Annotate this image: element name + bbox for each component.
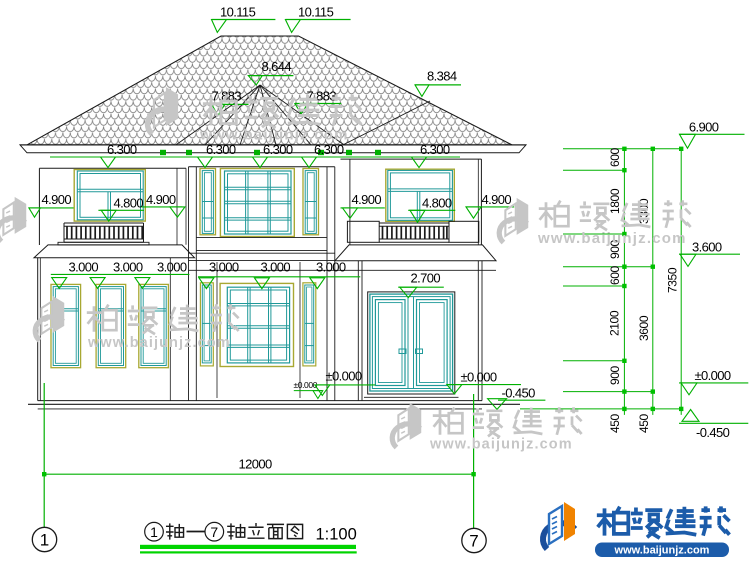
svg-text:6.300: 6.300 xyxy=(206,142,236,157)
svg-text:450: 450 xyxy=(637,413,651,433)
svg-text:±0.000: ±0.000 xyxy=(294,380,318,390)
svg-text:4.900: 4.900 xyxy=(146,192,176,207)
svg-text:3.000: 3.000 xyxy=(261,260,291,275)
svg-text:1800: 1800 xyxy=(608,188,622,214)
svg-text:www.baijunjz.com: www.baijunjz.com xyxy=(537,230,687,247)
svg-text:www.baijunjz.com: www.baijunjz.com xyxy=(87,335,231,351)
svg-text:7350: 7350 xyxy=(666,267,680,293)
svg-text:6.900: 6.900 xyxy=(689,120,719,135)
svg-text:1: 1 xyxy=(150,524,158,540)
svg-text:600: 600 xyxy=(608,265,622,285)
svg-text:4.900: 4.900 xyxy=(42,192,72,207)
svg-text:7: 7 xyxy=(469,532,478,551)
svg-text:3.000: 3.000 xyxy=(157,260,187,275)
svg-text:12000: 12000 xyxy=(239,457,273,472)
svg-text:3.000: 3.000 xyxy=(209,260,239,275)
svg-text:6.300: 6.300 xyxy=(263,142,293,157)
svg-text:4.800: 4.800 xyxy=(422,196,452,211)
svg-text:8.644: 8.644 xyxy=(262,59,292,74)
svg-text:4.900: 4.900 xyxy=(352,192,382,207)
svg-text:900: 900 xyxy=(608,365,622,385)
svg-text:8.384: 8.384 xyxy=(427,69,457,84)
svg-text:7.883: 7.883 xyxy=(307,89,337,104)
svg-text:2.700: 2.700 xyxy=(411,270,441,285)
svg-text:1: 1 xyxy=(40,531,49,550)
svg-text:3.000: 3.000 xyxy=(69,260,99,275)
svg-text:3600: 3600 xyxy=(637,315,651,341)
svg-text:3.600: 3.600 xyxy=(692,240,722,255)
svg-text:2100: 2100 xyxy=(608,310,622,336)
svg-text:4.900: 4.900 xyxy=(482,192,512,207)
svg-text:10.115: 10.115 xyxy=(298,5,334,20)
svg-text:7: 7 xyxy=(210,524,218,540)
svg-text:3.000: 3.000 xyxy=(113,260,143,275)
svg-text:www.baijunjz.com: www.baijunjz.com xyxy=(199,127,349,144)
svg-text:±0.000: ±0.000 xyxy=(695,368,731,383)
svg-text:10.115: 10.115 xyxy=(220,5,256,20)
svg-text:6.300: 6.300 xyxy=(420,142,450,157)
svg-text:6.300: 6.300 xyxy=(107,142,137,157)
svg-text:-0.450: -0.450 xyxy=(696,425,730,440)
svg-text:1:100: 1:100 xyxy=(316,526,357,544)
svg-text:6.300: 6.300 xyxy=(314,142,344,157)
svg-text:3.000: 3.000 xyxy=(316,260,346,275)
svg-text:±0.000: ±0.000 xyxy=(461,369,497,384)
svg-text:600: 600 xyxy=(608,147,622,167)
svg-text:450: 450 xyxy=(608,413,622,433)
svg-text:www.baijunjz.com: www.baijunjz.com xyxy=(614,545,710,557)
svg-text:www.baijunjz.com: www.baijunjz.com xyxy=(429,437,573,453)
svg-text:4.800: 4.800 xyxy=(114,196,144,211)
svg-text:±0.000: ±0.000 xyxy=(326,368,362,383)
